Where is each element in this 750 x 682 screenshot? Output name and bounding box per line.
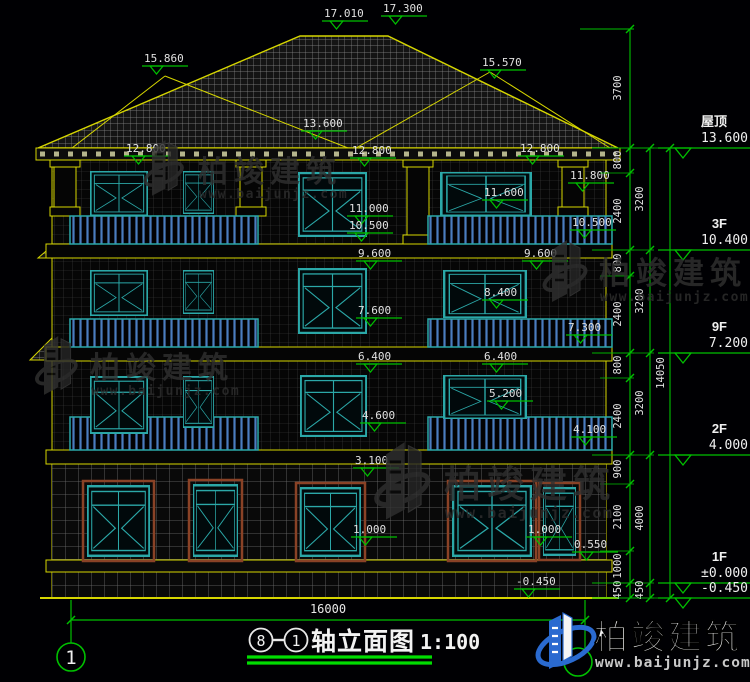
window	[91, 172, 147, 216]
dimension-value: 800	[612, 356, 624, 375]
dimension-value: 450	[634, 581, 646, 600]
logo-url: www.baijunjz.com	[595, 655, 750, 671]
slab-2f	[46, 450, 612, 464]
dimension-value: 800	[612, 151, 624, 170]
watermark-text: 柏竣建筑	[599, 256, 747, 291]
floor-name: 屋顶	[701, 114, 727, 129]
elevation-value: 9.600	[358, 247, 391, 260]
elevation-value: 4.100	[573, 423, 606, 436]
dimension-value: 2400	[612, 301, 624, 326]
floor-level: 2F4.000	[658, 421, 750, 465]
elevation-value: 10.500	[572, 216, 612, 229]
elevation-value: 5.200	[489, 387, 522, 400]
floor-name: 9F	[712, 319, 727, 334]
window	[183, 271, 213, 314]
cad-elevation-drawing: 17.01017.30015.86015.57013.60012.80012.8…	[0, 0, 750, 682]
elevation-value: 10.500	[349, 219, 389, 232]
watermark-url: www.baijunjz.com	[600, 290, 749, 305]
elevation-value: 17.010	[324, 7, 364, 20]
window	[301, 376, 366, 436]
elevation-value: 6.400	[484, 350, 517, 363]
dimension-value: 3200	[634, 186, 646, 211]
window	[301, 488, 360, 556]
elevation-value: 17.300	[383, 2, 423, 15]
watermark-url: www.baijunjz.com	[445, 504, 614, 522]
elevation-value: 1.000	[353, 523, 386, 536]
floor-level: -0.450	[658, 581, 750, 608]
elevation-value: 4.600	[362, 409, 395, 422]
elevation-marker: 15.570	[480, 56, 526, 78]
floor-level: 9F7.200	[658, 319, 750, 363]
elevation-value: 11.600	[484, 186, 524, 199]
elevation-drawing-canvas: 17.01017.30015.86015.57013.60012.80012.8…	[0, 0, 750, 682]
balcony-railing	[70, 319, 258, 347]
floor-elevation: ±0.000	[701, 566, 748, 581]
elevation-value: 15.570	[482, 56, 522, 69]
logo-text: 柏竣建筑	[594, 618, 742, 657]
window	[91, 271, 147, 316]
dimension-value: 2400	[612, 198, 624, 223]
elevation-value: 11.800	[570, 169, 610, 182]
dimension-value: 2400	[612, 403, 624, 428]
elevation-marker: 15.860	[142, 52, 188, 74]
dimension-value: 3700	[612, 75, 624, 100]
elevation-value: 1.000	[528, 523, 561, 536]
floor-level-lines: 屋顶13.6003F10.4009F7.2002F4.0001F±0.000-0…	[658, 114, 750, 608]
floor-elevation: 10.400	[701, 233, 748, 248]
floor-elevation: 4.000	[709, 438, 748, 453]
watermark-url: www.baijunjz.com	[91, 384, 240, 399]
window	[299, 269, 366, 333]
watermark-url: www.baijunjz.com	[199, 187, 348, 202]
scale-label: 1:100	[420, 630, 480, 654]
elevation-value: 7.300	[568, 321, 601, 334]
elevation-marker: 17.300	[381, 2, 427, 24]
elevation-value: 15.860	[144, 52, 184, 65]
window	[194, 485, 238, 556]
dimension-value: 1000	[612, 553, 624, 578]
dimension-value: 14050	[655, 357, 667, 389]
elevation-value: 12.800	[520, 142, 560, 155]
watermark-text: 柏竣建筑	[198, 155, 342, 189]
elevation-value: 13.600	[303, 117, 343, 130]
title-axis-a: 8	[256, 632, 265, 650]
dimension-value: 3200	[634, 390, 646, 415]
title-axis-b: 1	[291, 632, 300, 650]
elevation-value: 6.400	[358, 350, 391, 363]
logo: 柏竣建筑 www.baijunjz.com	[532, 613, 750, 672]
elevation-value: 12.800	[352, 144, 392, 157]
floor-level: 屋顶13.600	[658, 114, 750, 158]
drawing-title: 8 1 轴立面图 1:100	[247, 627, 480, 663]
elevation-marker: 17.010	[322, 7, 368, 29]
overall-dimension-label: 16000	[310, 602, 346, 616]
floor-name: 1F	[712, 549, 727, 564]
floor-name: 3F	[712, 216, 727, 231]
balcony-railing	[70, 216, 258, 244]
floor-elevation: 7.200	[709, 336, 748, 351]
elevation-value: 3.100	[355, 454, 388, 467]
elevation-value: 11.000	[349, 202, 389, 215]
axis-bubble-1-label: 1	[65, 647, 76, 669]
floor-level: 3F10.400	[658, 216, 750, 260]
title-text: 轴立面图	[311, 627, 415, 656]
dimension-value: 2100	[612, 504, 624, 529]
elevation-value: 7.600	[358, 304, 391, 317]
window	[88, 486, 149, 556]
floor-elevation: 13.600	[701, 131, 748, 146]
floor-elevation: -0.450	[701, 581, 748, 596]
floor-name: 2F	[712, 421, 727, 436]
watermark-text: 柏竣建筑	[90, 351, 234, 385]
elevation-value: 0.550	[574, 538, 607, 551]
elevation-value: 8.400	[484, 286, 517, 299]
dimension-value: 4000	[634, 505, 646, 530]
logo-building-icon	[549, 615, 561, 669]
elevation-value: -0.450	[516, 575, 556, 588]
watermark-text: 柏竣建筑	[444, 463, 616, 505]
